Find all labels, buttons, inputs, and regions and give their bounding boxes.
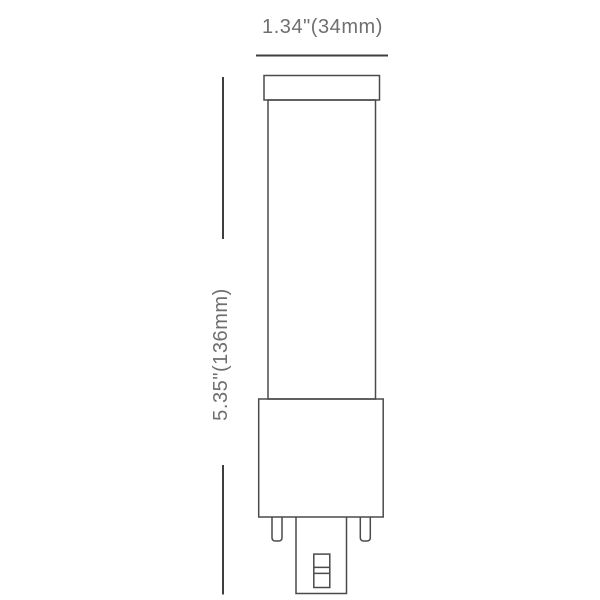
svg-text:1.34"(34mm): 1.34"(34mm) — [262, 16, 383, 38]
svg-text:5.35"(136mm): 5.35"(136mm) — [210, 288, 232, 421]
